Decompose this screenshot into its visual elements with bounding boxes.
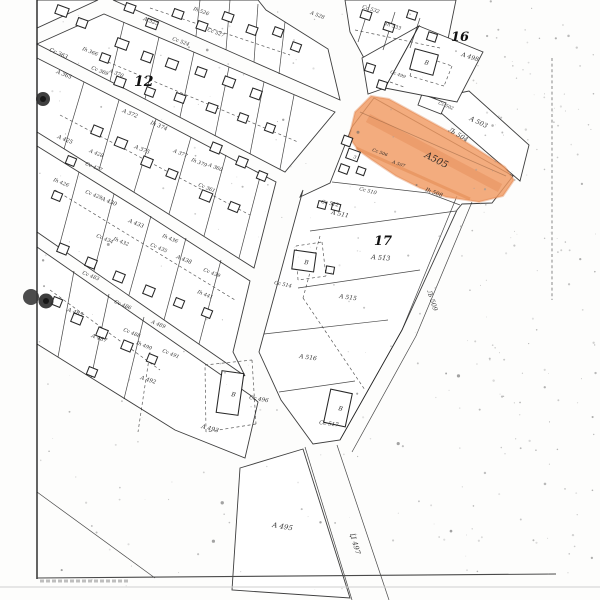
scan-speck: [512, 65, 514, 67]
scan-speck: [293, 62, 295, 64]
scan-speck: [100, 106, 102, 108]
scan-speck: [495, 125, 496, 126]
scan-speck: [310, 217, 311, 218]
scan-speck-dark: [450, 530, 453, 533]
scan-speck: [593, 93, 595, 95]
scan-speck: [568, 553, 570, 555]
scan-speck: [219, 363, 221, 365]
scan-speck: [362, 416, 364, 418]
scan-speck: [555, 37, 557, 39]
scan-speck-dark: [61, 569, 63, 571]
scan-speck: [505, 252, 507, 254]
scan-speck: [557, 157, 559, 159]
scan-speck: [52, 438, 53, 439]
scan-speck: [492, 379, 494, 381]
scan-speck: [462, 486, 463, 487]
scan-speck: [108, 47, 110, 49]
scan-speck: [536, 329, 538, 331]
scan-speck: [565, 241, 567, 243]
scan-speck: [548, 373, 549, 374]
scan-speck: [579, 258, 581, 260]
scan-speck: [567, 572, 568, 573]
scan-speck: [334, 522, 336, 524]
scan-speck: [293, 39, 295, 41]
scan-speck: [248, 365, 249, 366]
scan-speck: [305, 163, 306, 164]
scan-speck: [535, 542, 537, 544]
scan-speck: [565, 111, 566, 112]
scan-speck: [90, 164, 91, 165]
scan-speck: [430, 504, 432, 506]
scan-speck: [577, 402, 578, 403]
scan-speck: [553, 112, 554, 113]
scan-speck: [357, 250, 358, 251]
scan-speck: [557, 449, 559, 451]
parcel-line: [37, 492, 155, 578]
scan-speck: [593, 434, 594, 435]
scan-speck: [229, 522, 231, 524]
scan-speck: [92, 314, 93, 315]
scan-speck: [524, 29, 525, 30]
scan-speck: [145, 499, 146, 500]
scan-speck: [544, 483, 547, 486]
scan-speck: [443, 539, 445, 541]
scan-speck: [588, 124, 589, 125]
scan-speck: [550, 232, 551, 233]
scan-speck: [223, 514, 224, 515]
scan-speck: [504, 56, 506, 58]
scan-speck: [120, 243, 121, 244]
scan-speck: [544, 169, 546, 171]
scan-speck-dark: [107, 243, 110, 246]
scan-speck: [557, 251, 558, 252]
scan-speck: [314, 19, 315, 20]
scan-speck: [522, 373, 523, 374]
scan-speck: [63, 21, 64, 22]
scan-speck: [525, 128, 527, 130]
scan-speck: [343, 454, 345, 456]
scan-speck: [477, 571, 479, 573]
scan-speck: [579, 65, 581, 67]
scan-speck: [267, 184, 269, 186]
scan-speck: [582, 309, 584, 311]
scan-speck: [516, 78, 517, 79]
scan-speck: [127, 558, 128, 559]
block-number-label: 12: [134, 74, 154, 90]
scan-speck: [258, 237, 259, 238]
scan-speck: [363, 307, 365, 309]
scan-speck: [438, 235, 440, 237]
cadastral-map-scan: A505 Cc 363A 365Ih 366Cc 369A 370A 525Cc…: [0, 0, 600, 600]
scan-speck: [79, 251, 80, 252]
scan-speck: [104, 71, 105, 72]
scan-speck: [531, 8, 532, 9]
scan-speck: [198, 104, 199, 105]
scan-speck: [357, 237, 359, 239]
scan-speck: [564, 488, 566, 490]
scan-speck: [362, 190, 363, 191]
scan-speck: [277, 11, 278, 12]
scan-speck: [75, 476, 76, 477]
scan-speck: [484, 134, 486, 136]
parcel-blocks-layer: [37, 0, 529, 598]
scan-speck: [574, 546, 576, 548]
scan-speck-dark: [212, 540, 215, 543]
scan-speck: [478, 540, 480, 542]
scan-speck: [392, 539, 394, 541]
scan-speck: [222, 319, 223, 320]
road-label: Љ 509: [425, 288, 440, 312]
scan-speck: [484, 472, 486, 474]
scan-speck: [434, 300, 435, 301]
scan-speck: [536, 149, 537, 150]
punch-hole: [23, 289, 39, 305]
scan-speck: [570, 144, 572, 146]
scan-speck: [476, 83, 477, 84]
scan-speck: [513, 245, 515, 247]
scan-speck: [243, 74, 245, 76]
scan-speck: [39, 341, 41, 343]
scan-speck: [434, 287, 436, 289]
scan-speck: [544, 93, 545, 94]
scan-speck: [341, 588, 342, 589]
scan-speck: [91, 525, 93, 527]
scan-speck: [265, 211, 266, 212]
scan-speck: [438, 536, 439, 537]
scan-speck: [547, 538, 548, 539]
scan-speck: [119, 499, 121, 501]
scan-speck: [301, 508, 303, 510]
scan-speck: [115, 444, 117, 446]
scan-speck: [227, 63, 229, 65]
scan-speck: [65, 133, 66, 134]
scan-speck: [560, 105, 562, 107]
scan-speck: [74, 315, 75, 316]
scan-speck: [338, 264, 340, 266]
scan-speck: [349, 517, 350, 518]
scan-speck: [461, 255, 463, 257]
scan-speck: [514, 402, 515, 403]
scan-speck: [486, 111, 488, 113]
scan-speck: [308, 516, 309, 517]
scan-speck: [537, 270, 538, 271]
scan-speck: [348, 351, 349, 352]
scan-speck: [220, 381, 221, 382]
scan-speck: [490, 0, 492, 2]
scan-speck: [257, 82, 258, 83]
scan-speck: [592, 416, 594, 418]
scan-speck: [562, 24, 563, 25]
scan-speck: [595, 234, 596, 235]
scan-speck: [236, 372, 237, 373]
scan-speck: [592, 342, 594, 344]
scan-speck: [160, 55, 161, 56]
parcel-label: A 528: [308, 10, 325, 21]
scan-speck: [527, 42, 529, 44]
scan-speck: [203, 471, 205, 473]
block-number-label: 16: [451, 30, 469, 45]
scan-speck: [218, 229, 219, 230]
scan-speck: [147, 368, 148, 369]
scan-speck: [594, 344, 595, 345]
scan-speck: [557, 238, 558, 239]
scan-speck: [78, 15, 79, 16]
scan-speck: [520, 447, 522, 449]
scan-speck: [128, 379, 130, 381]
scan-speck: [231, 183, 232, 184]
scan-speck: [310, 247, 311, 248]
scan-speck: [250, 406, 251, 407]
scan-speck: [593, 54, 594, 55]
cadastral-map-canvas: A505 Cc 363A 365Ih 366Cc 369A 370A 525Cc…: [0, 0, 600, 600]
road-label: Џ 497: [348, 532, 362, 556]
scan-speck: [466, 569, 468, 571]
scan-speck: [474, 340, 476, 342]
scan-speck-dark: [357, 131, 360, 134]
scan-speck: [528, 62, 530, 64]
scan-speck: [281, 217, 282, 218]
scan-speck: [591, 557, 593, 559]
scan-speck: [516, 234, 517, 235]
scan-speck: [298, 257, 299, 258]
building-footprint: [325, 266, 334, 274]
scan-speck: [503, 135, 504, 136]
punch-hole-center: [40, 96, 46, 102]
scan-speck-dark: [356, 393, 358, 395]
scan-speck: [448, 390, 449, 391]
scan-speck: [544, 386, 546, 388]
scan-speck: [127, 543, 129, 545]
scan-speck-dark: [416, 184, 418, 186]
punch-hole-center: [43, 298, 49, 304]
scan-speck: [539, 38, 540, 39]
scan-speck: [469, 155, 470, 156]
scan-speck: [229, 25, 231, 27]
scan-speck: [459, 407, 460, 408]
scan-speck: [409, 13, 411, 15]
scan-speck: [330, 272, 331, 273]
scan-speck-dark: [319, 521, 321, 523]
scan-speck: [69, 411, 71, 413]
scan-speck: [459, 448, 460, 449]
scan-speck: [578, 109, 579, 110]
scan-speck: [162, 187, 164, 189]
scan-speck: [297, 482, 299, 484]
scan-speck: [435, 397, 436, 398]
scan-speck: [69, 375, 70, 376]
scan-speck: [568, 283, 570, 285]
scan-speck: [575, 492, 577, 494]
scan-speck: [499, 352, 500, 353]
scan-speck-dark: [282, 119, 284, 121]
scan-speck: [470, 76, 471, 77]
scan-speck: [528, 343, 529, 344]
scan-speck: [594, 271, 596, 273]
scan-speck: [242, 186, 244, 188]
scan-speck: [486, 35, 488, 37]
scan-speck: [576, 47, 578, 49]
scan-speck: [197, 553, 199, 555]
scan-speck: [296, 59, 297, 60]
scan-speck: [266, 466, 267, 467]
scan-speck: [594, 372, 596, 374]
scan-speck: [510, 237, 511, 238]
scan-speck: [392, 136, 394, 138]
scan-speck: [161, 266, 162, 267]
scan-speck: [515, 438, 516, 439]
scan-speck: [290, 165, 292, 167]
scan-speck: [590, 129, 591, 130]
scan-speck: [473, 188, 474, 189]
scan-speck: [551, 70, 552, 71]
scan-speck: [398, 513, 399, 514]
scan-speck: [415, 332, 416, 333]
scan-speck: [473, 79, 475, 81]
scan-speck: [466, 534, 467, 535]
scan-speck: [174, 106, 175, 107]
scan-speck: [497, 29, 499, 31]
scan-speck: [78, 63, 79, 64]
scan-speck: [481, 536, 483, 538]
scan-speck: [529, 73, 531, 75]
scan-speck: [407, 255, 409, 257]
scan-speck: [469, 289, 471, 291]
scan-speck: [333, 284, 335, 286]
scan-speck-dark: [42, 259, 44, 261]
scan-speck: [498, 162, 499, 163]
scan-speck: [544, 238, 545, 239]
scan-speck: [569, 249, 571, 251]
scan-speck: [486, 280, 487, 281]
scan-speck: [489, 358, 491, 360]
scan-speck: [390, 109, 392, 111]
scan-speck: [418, 500, 420, 502]
scan-speck: [475, 169, 477, 171]
scan-speck: [276, 409, 278, 411]
scan-speck: [484, 212, 485, 213]
scan-speck: [564, 93, 565, 94]
scan-speck: [434, 523, 435, 524]
scan-speck: [390, 345, 392, 347]
scan-speck-dark: [457, 374, 460, 377]
scan-speck: [491, 124, 494, 127]
scan-speck: [45, 254, 47, 256]
block-number-label: 17: [374, 234, 392, 249]
scan-speck: [277, 121, 278, 122]
scan-speck: [109, 549, 111, 551]
scan-speck: [51, 90, 53, 92]
scan-speck: [312, 67, 314, 69]
scan-speck: [360, 251, 361, 252]
scan-speck: [484, 188, 486, 190]
scan-speck: [519, 414, 520, 415]
scan-speck: [194, 213, 196, 215]
scan-speck: [365, 352, 366, 353]
scan-speck: [183, 351, 184, 352]
scan-speck: [419, 313, 421, 315]
scan-speck: [532, 539, 534, 541]
scan-speck: [294, 247, 295, 248]
scan-speck: [59, 101, 60, 102]
scan-speck: [554, 108, 555, 109]
scan-speck: [119, 487, 121, 489]
scan-speck: [486, 317, 487, 318]
scan-speck: [512, 61, 513, 62]
scan-speck: [499, 393, 500, 394]
scan-speck: [210, 96, 211, 97]
scan-speck: [560, 249, 562, 251]
scan-speck: [527, 139, 528, 140]
scan-speck: [465, 556, 466, 557]
scan-speck: [467, 340, 468, 341]
scan-speck: [402, 445, 404, 447]
scan-speck: [544, 369, 546, 371]
scan-speck: [188, 46, 190, 48]
scan-speck: [39, 173, 40, 174]
scan-speck: [236, 176, 237, 177]
scan-speck: [504, 453, 505, 454]
scan-speck: [131, 566, 132, 567]
scan-speck: [503, 359, 505, 361]
scan-speck: [476, 363, 477, 364]
scan-speck: [553, 121, 555, 123]
scan-speck: [171, 481, 172, 482]
scan-speck: [356, 534, 357, 535]
scan-speck: [370, 438, 371, 439]
scan-speck: [40, 460, 42, 462]
scan-speck: [91, 579, 92, 580]
scan-speck: [501, 132, 503, 134]
scan-speck: [69, 129, 70, 130]
scan-speck: [532, 318, 534, 320]
scan-speck: [374, 202, 375, 203]
scan-speck: [500, 117, 502, 119]
scan-speck: [492, 344, 494, 346]
scan-speck: [522, 69, 523, 70]
scan-speck: [460, 225, 462, 227]
scan-speck: [394, 211, 396, 213]
scan-speck: [59, 91, 61, 93]
scan-speck: [226, 384, 227, 385]
scan-speck: [168, 499, 169, 500]
scan-speck: [520, 518, 522, 520]
scan-speck: [494, 161, 496, 163]
scan-speck: [557, 399, 559, 401]
scan-speck: [534, 94, 535, 95]
scan-speck: [498, 493, 500, 495]
scan-speck-dark: [43, 285, 45, 287]
scan-speck-dark: [221, 501, 224, 504]
scan-speck: [577, 153, 579, 155]
scan-speck: [514, 231, 515, 232]
scan-speck: [549, 421, 550, 422]
scan-speck: [543, 96, 545, 98]
scan-speck: [259, 409, 261, 411]
scan-speck: [557, 125, 559, 127]
scan-speck: [348, 301, 350, 303]
scan-speck: [126, 585, 127, 586]
scan-speck: [350, 186, 351, 187]
scan-speck: [194, 147, 196, 149]
scan-speck: [567, 35, 569, 37]
scan-speck: [383, 35, 385, 37]
scan-speck: [60, 175, 61, 176]
scan-speck: [205, 318, 207, 320]
scan-speck: [572, 534, 574, 536]
scan-speck: [385, 255, 386, 256]
scan-speck: [592, 489, 594, 491]
scan-speck: [80, 19, 82, 21]
